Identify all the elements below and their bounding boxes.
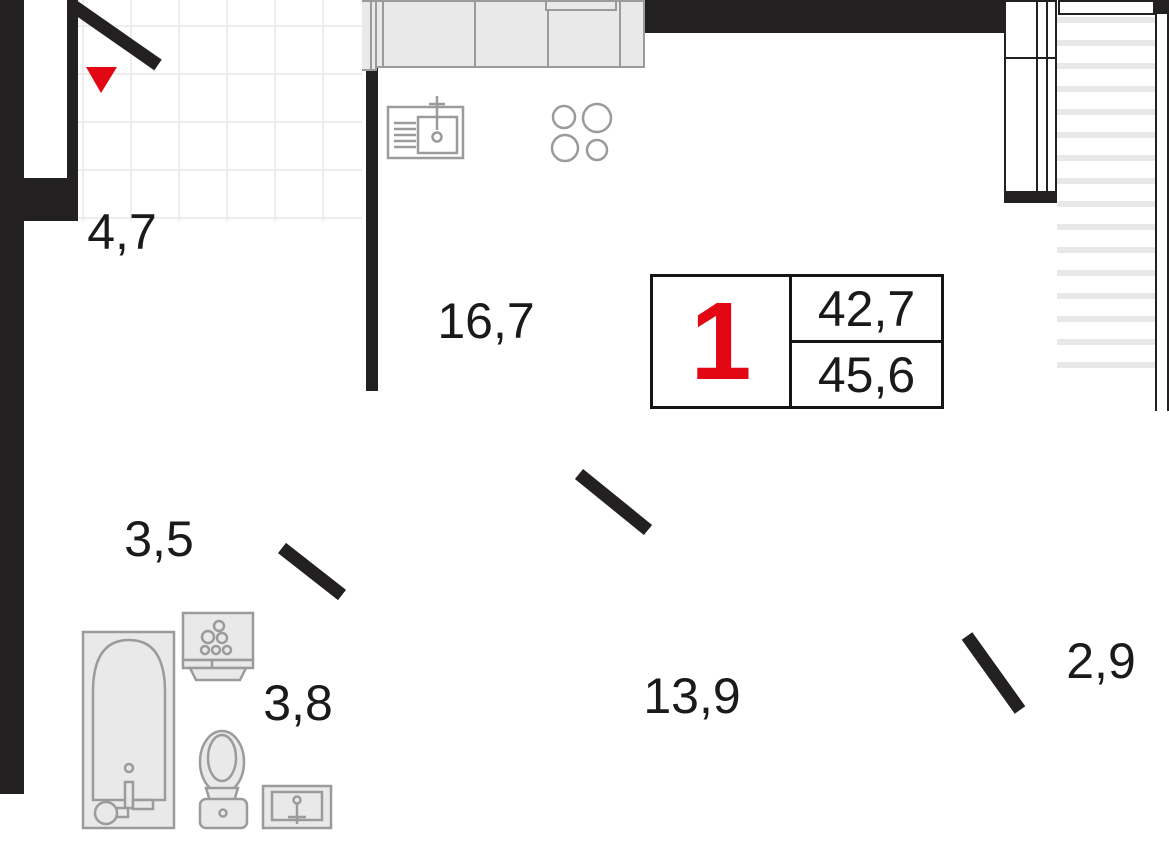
entrance-marker-icon — [86, 67, 117, 93]
room-label-corridor: 3,5 — [124, 514, 194, 564]
floor-plan: ✳ — [0, 0, 1169, 861]
room-label-bathroom: 3,8 — [263, 678, 333, 728]
bathtub — [83, 632, 174, 828]
room-label-kitchen-living: 16,7 — [437, 296, 534, 346]
balcony-door-leaf — [967, 636, 1020, 710]
fixtures-overlay — [0, 0, 1169, 861]
room-label-hallway: 4,7 — [87, 207, 157, 257]
unit-areas-column: 42,7 45,6 — [789, 277, 941, 406]
kitchen-sink — [388, 96, 463, 158]
stove — [552, 104, 611, 161]
toilet — [200, 731, 247, 828]
room-label-bedroom: 13,9 — [643, 671, 740, 721]
room-label-balcony: 2,9 — [1066, 636, 1136, 686]
bedroom-door-leaf — [579, 474, 648, 530]
unit-rooms-count-cell: 1 — [653, 277, 789, 406]
bathroom-sink — [263, 786, 331, 828]
entry-door-leaf — [72, 5, 158, 65]
unit-rooms-count: 1 — [690, 287, 751, 397]
unit-living-area: 42,7 — [792, 277, 941, 343]
unit-total-area: 45,6 — [792, 343, 941, 406]
washing-machine — [183, 613, 253, 680]
bathroom-door-leaf — [282, 548, 342, 595]
unit-info-box: 1 42,7 45,6 — [650, 274, 944, 409]
